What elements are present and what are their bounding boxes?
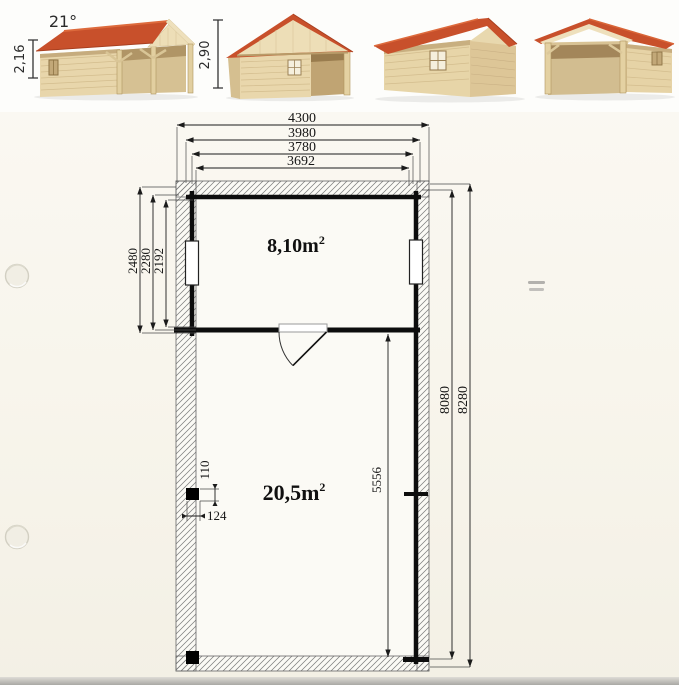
scene: 21° 2,16 2,90 bbox=[0, 0, 679, 685]
dim-110: 110 bbox=[197, 460, 212, 479]
scanned-catalog-page: 21° 2,16 2,90 bbox=[0, 0, 679, 685]
dim-124: 124 bbox=[207, 508, 227, 523]
dim-3692: 3692 bbox=[287, 154, 315, 169]
door-frame bbox=[279, 324, 327, 332]
interior-shadow bbox=[548, 44, 626, 59]
post-left-middle bbox=[186, 488, 199, 500]
corner-post bbox=[188, 44, 193, 93]
wall-top bbox=[176, 181, 429, 197]
punch-hole-bottom bbox=[6, 526, 29, 549]
page-bottom-edge bbox=[0, 677, 679, 685]
post-bottom-left bbox=[186, 651, 199, 664]
carport-post bbox=[620, 41, 626, 93]
ridge-height-label: 2,90 bbox=[198, 41, 213, 70]
floor-plan: 8,10m2 20,5m2 4300 3980 3780 3692 2480 2… bbox=[125, 111, 471, 671]
room-area-bottom: 20,5m2 bbox=[263, 480, 326, 505]
header-beam bbox=[545, 43, 628, 45]
window-right bbox=[410, 240, 423, 284]
punch-hole-top bbox=[6, 265, 29, 288]
dim-5556: 5556 bbox=[369, 467, 384, 494]
dim-2192: 2192 bbox=[151, 248, 166, 274]
gable-end-wall bbox=[470, 40, 516, 97]
window-left bbox=[186, 241, 199, 285]
carport-post bbox=[151, 46, 156, 94]
carport-post bbox=[117, 50, 122, 94]
carport-post bbox=[344, 50, 350, 95]
wall-bottom bbox=[176, 656, 429, 671]
ground-shadow bbox=[375, 96, 525, 103]
dim-3980: 3980 bbox=[288, 126, 316, 141]
room-area-top: 8,10m2 bbox=[267, 233, 325, 257]
dim-8080: 8080 bbox=[438, 386, 453, 414]
roof-angle-label: 21° bbox=[49, 12, 77, 31]
dim-3780: 3780 bbox=[288, 140, 316, 155]
dim-8280: 8280 bbox=[456, 386, 471, 414]
wall-height-label: 2,16 bbox=[13, 45, 28, 74]
dim-4300: 4300 bbox=[288, 111, 316, 126]
